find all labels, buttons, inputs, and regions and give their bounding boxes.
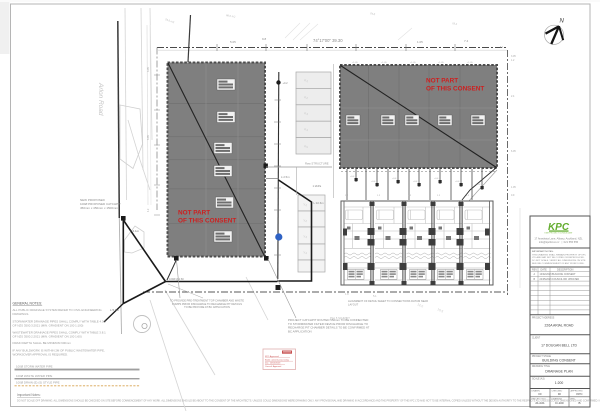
svg-text:BUILDING CONSENT: BUILDING CONSENT: [542, 359, 576, 363]
svg-text:DI: DI: [558, 392, 561, 396]
svg-text:Raw STRUCTURE: Raw STRUCTURE: [305, 162, 329, 166]
svg-text:COUNCIL RFI UPDATED: COUNCIL RFI UPDATED: [552, 278, 579, 281]
svg-text:+0.4: +0.4: [350, 176, 355, 178]
svg-text:L:4.1m: L:4.1m: [130, 229, 140, 233]
svg-text:6.05: 6.05: [511, 150, 516, 153]
svg-text:9.8: 9.8: [262, 37, 267, 41]
svg-text:3.05: 3.05: [147, 67, 150, 72]
svg-text:3.05: 3.05: [147, 135, 150, 140]
svg-text:+1.05: +1.05: [352, 62, 358, 64]
svg-text:ALIGNMENT OF DETAIL SHEET TO C: ALIGNMENT OF DETAIL SHEET TO CONNECTIONS…: [348, 299, 428, 303]
svg-text:+1.05: +1.05: [438, 62, 444, 64]
svg-text:+0.4: +0.4: [455, 181, 460, 183]
svg-text:1.2: 1.2: [345, 195, 349, 197]
svg-text:BEFORE COMMENCEMENT OF ANY WOR: BEFORE COMMENCEMENT OF ANY WORK DONE.: [532, 262, 585, 265]
svg-text:17 DOUGAN BELL LTD: 17 DOUGAN BELL LTD: [541, 344, 577, 348]
svg-text:TO BE PROVIDE AT BC APPLICATIO: TO BE PROVIDE AT BC APPLICATION: [184, 305, 230, 309]
svg-text:1.8: 1.8: [345, 292, 349, 296]
svg-text:PROJECT ADDRESS: PROJECT ADDRESS: [532, 316, 555, 319]
svg-text:Arlon Road: Arlon Road: [97, 82, 104, 116]
svg-text:1:2kPa: 1:2kPa: [313, 184, 322, 188]
svg-text:1.05: 1.05: [511, 186, 516, 189]
svg-text:Council: Approval: Council: Approval: [265, 365, 282, 368]
svg-text:4.2: 4.2: [147, 208, 150, 212]
svg-text:Doc: 10/05/2023: Doc: 10/05/2023: [265, 363, 281, 365]
svg-text:L:2.5m: L:2.5m: [281, 175, 290, 179]
svg-text:NOT PART: NOT PART: [426, 78, 458, 85]
svg-text:DESCRIPTION: DESCRIPTION: [557, 268, 574, 271]
svg-text:100Ø @1:60: 100Ø @1:60: [169, 277, 184, 281]
svg-text:DRAWINGS.: DRAWINGS.: [13, 312, 30, 316]
svg-text:DRAWING TITLE: DRAWING TITLE: [532, 365, 550, 368]
svg-text:100Ø WASTE WATER PIPE: 100Ø WASTE WATER PIPE: [16, 374, 52, 378]
svg-text:Build. consent processing: Build. consent processing: [265, 358, 290, 361]
svg-text:1.2: 1.2: [437, 195, 441, 197]
svg-text:+0.4: +0.4: [392, 178, 397, 180]
svg-text:450mm x 450mm x 1500mm: 450mm x 450mm x 1500mm: [80, 206, 119, 210]
svg-text:DO NOT SCALE OFF DRAWING. ALL: DO NOT SCALE OFF DRAWING. ALL DIMENSIONS…: [17, 400, 600, 403]
svg-text:18.2: 18.2: [452, 21, 458, 26]
svg-text:10/02/2023: 10/02/2023: [540, 273, 553, 276]
svg-text:+0.4: +0.4: [371, 181, 376, 183]
svg-text:3.05: 3.05: [511, 55, 516, 58]
svg-text:THIS DRAWING SHALL REMAIN PROP: THIS DRAWING SHALL REMAIN PROPERTY OF KP…: [532, 253, 586, 256]
svg-text:1.05: 1.05: [417, 40, 423, 44]
svg-text:+1.05: +1.05: [381, 62, 387, 64]
svg-text:DI: DI: [539, 392, 542, 396]
svg-text:1.2: 1.2: [408, 195, 412, 197]
svg-text:OF NZS 3500.3:2021 (MIN. GRADI: OF NZS 3500.3:2021 (MIN. GRADIENT ON 100…: [13, 324, 84, 328]
svg-text:IMPORTANT NOTES:: IMPORTANT NOTES:: [532, 250, 554, 253]
svg-text:+0.4: +0.4: [476, 184, 481, 186]
svg-text:REV: REV: [532, 268, 537, 271]
svg-text:KIWI PROJECT CONSULTANT: KIWI PROJECT CONSULTANT: [544, 232, 573, 235]
svg-text:226A ARIAL ROAD: 226A ARIAL ROAD: [545, 324, 574, 328]
svg-text:OF THIS CONSENT: OF THIS CONSENT: [178, 218, 236, 225]
svg-text:KPC Approved: KPC Approved: [265, 355, 279, 358]
svg-text:LTD AND MAY NOT BE COPIED OR R: LTD AND MAY NOT BE COPIED OR REPRODUCED.: [532, 256, 585, 259]
svg-text:+0.4: +0.4: [413, 181, 418, 183]
svg-text:WORKSOVER APPROVAL IS REQUIRED: WORKSOVER APPROVAL IS REQUIRED.: [13, 353, 69, 357]
svg-text:24/05/2023: 24/05/2023: [540, 278, 553, 281]
svg-text:info@kpcltd.co.nz | 021 555: info@kpcltd.co.nz | 021 555 555: [539, 240, 579, 244]
svg-text:1:200: 1:200: [555, 381, 564, 385]
svg-text:N: N: [560, 19, 565, 25]
svg-text:SCALE (A3): SCALE (A3): [532, 378, 545, 381]
svg-text:24.0: 24.0: [370, 11, 376, 16]
svg-text:OF NZS 3500.2:2021 (MIN. GRADI: OF NZS 3500.2:2021 (MIN. GRADIENT ON 100…: [13, 335, 82, 339]
svg-text:100Ø DRAIN (E) (S) STYLE PIPE: 100Ø DRAIN (E) (S) STYLE PIPE: [16, 381, 60, 385]
svg-text:1.2: 1.2: [511, 59, 515, 62]
svg-text:68.0 m2: 68.0 m2: [226, 13, 236, 19]
svg-text:CLIENT: CLIENT: [532, 337, 541, 339]
svg-text:GENERAL NOTES:: GENERAL NOTES:: [13, 302, 43, 306]
svg-text:DATE: DATE: [541, 268, 548, 271]
svg-text:10.5: 10.5: [437, 307, 445, 313]
svg-text:0.9: 0.9: [511, 194, 515, 197]
svg-text:74°17'00" 39.30: 74°17'00" 39.30: [313, 38, 343, 43]
svg-text:DRAIN DEPTH SHALL BE MINIMUM 6: DRAIN DEPTH SHALL BE MINIMUM 600mm: [13, 341, 72, 345]
svg-text:2.4: 2.4: [511, 95, 515, 98]
svg-text:5.1: 5.1: [373, 294, 377, 298]
svg-text:BUILDING CONSENT: BUILDING CONSENT: [552, 273, 576, 276]
svg-text:BC APPLICATION: BC APPLICATION: [288, 329, 312, 333]
svg-text:1.2: 1.2: [466, 195, 470, 197]
svg-text:Plan 5 SCHMIDT: Plan 5 SCHMIDT: [330, 316, 350, 320]
svg-text:100Ø STORM WATER PIPE: 100Ø STORM WATER PIPE: [16, 364, 53, 368]
svg-text:7.4: 7.4: [464, 39, 469, 43]
svg-text:LAYOUT: LAYOUT: [348, 302, 359, 306]
svg-text:5.05: 5.05: [230, 40, 236, 44]
svg-text:KPC: KPC: [576, 392, 583, 396]
svg-text:1.2: 1.2: [377, 195, 381, 197]
svg-text:+0.2: +0.2: [283, 81, 289, 85]
svg-text:24.0 m2: 24.0 m2: [165, 17, 176, 24]
svg-text:+1.05: +1.05: [467, 62, 473, 64]
svg-text:NOT PART: NOT PART: [178, 210, 210, 217]
svg-text:Important Notes:: Important Notes:: [17, 393, 41, 397]
svg-text:6.1: 6.1: [500, 46, 504, 49]
svg-text:OF THIS CONSENT: OF THIS CONSENT: [426, 86, 484, 93]
svg-text:+0.4: +0.4: [434, 178, 439, 180]
svg-text:+1.05: +1.05: [410, 62, 416, 64]
svg-text:L:5.0m: L:5.0m: [110, 308, 120, 312]
svg-text:12.0: 12.0: [417, 302, 425, 308]
svg-text:DO NOT SCALE. VERIFY ALL DIMEN: DO NOT SCALE. VERIFY ALL DIMENSIONS ON S…: [532, 259, 586, 262]
svg-text:DRAINAGE PLAN: DRAINAGE PLAN: [545, 370, 573, 374]
svg-text:L:10.6m: L:10.6m: [314, 201, 325, 205]
